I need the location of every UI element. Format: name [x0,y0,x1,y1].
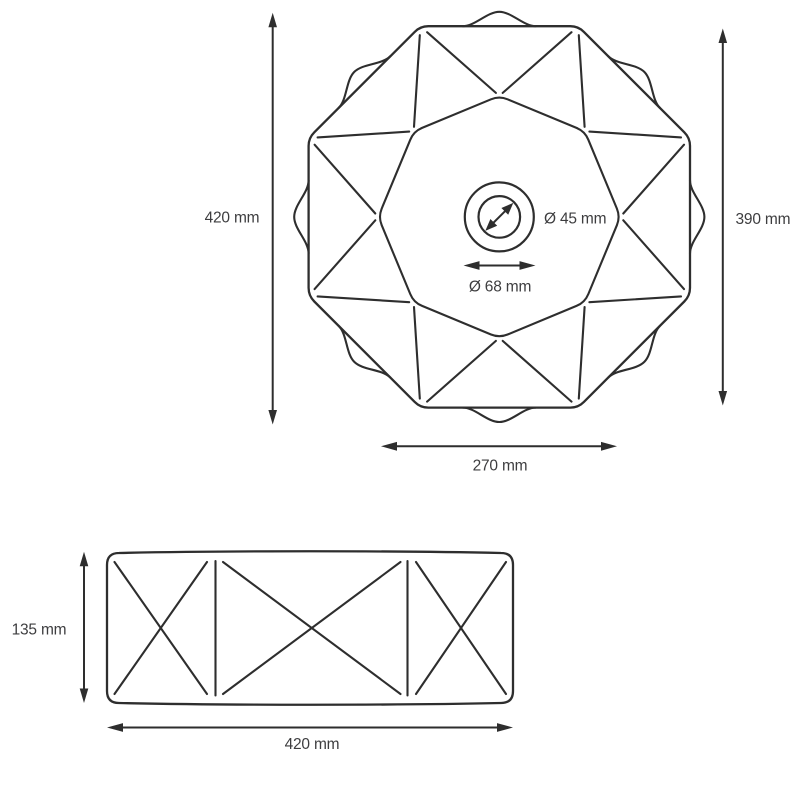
svg-text:420 mm: 420 mm [285,736,340,753]
svg-text:390 mm: 390 mm [736,211,791,228]
svg-text:Ø 68 mm: Ø 68 mm [469,279,531,296]
svg-text:420 mm: 420 mm [205,210,260,227]
svg-text:270 mm: 270 mm [473,458,528,475]
svg-text:Ø 45 mm: Ø 45 mm [544,211,606,228]
svg-text:135 mm: 135 mm [12,622,67,639]
